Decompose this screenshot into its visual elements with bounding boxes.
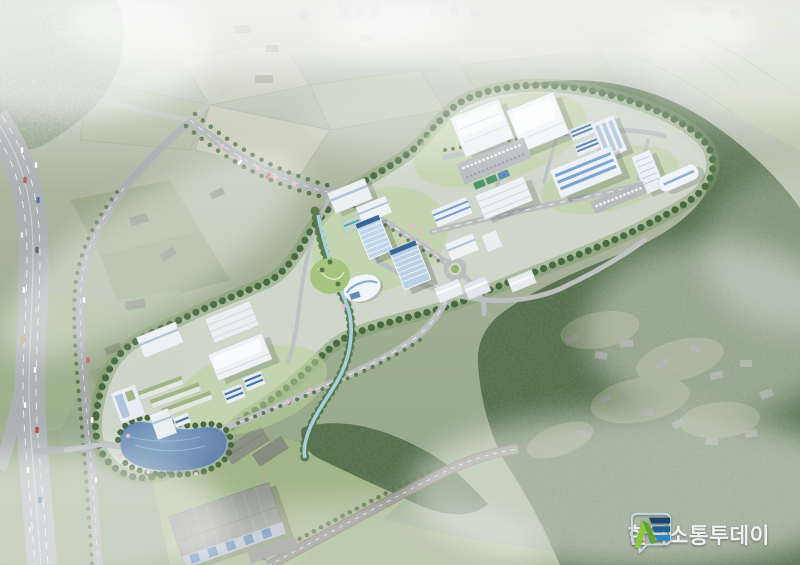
fog-layer — [0, 0, 800, 565]
aerial-rendering: 한국소통투데이 — [0, 0, 800, 565]
aerial-scene — [0, 0, 800, 565]
